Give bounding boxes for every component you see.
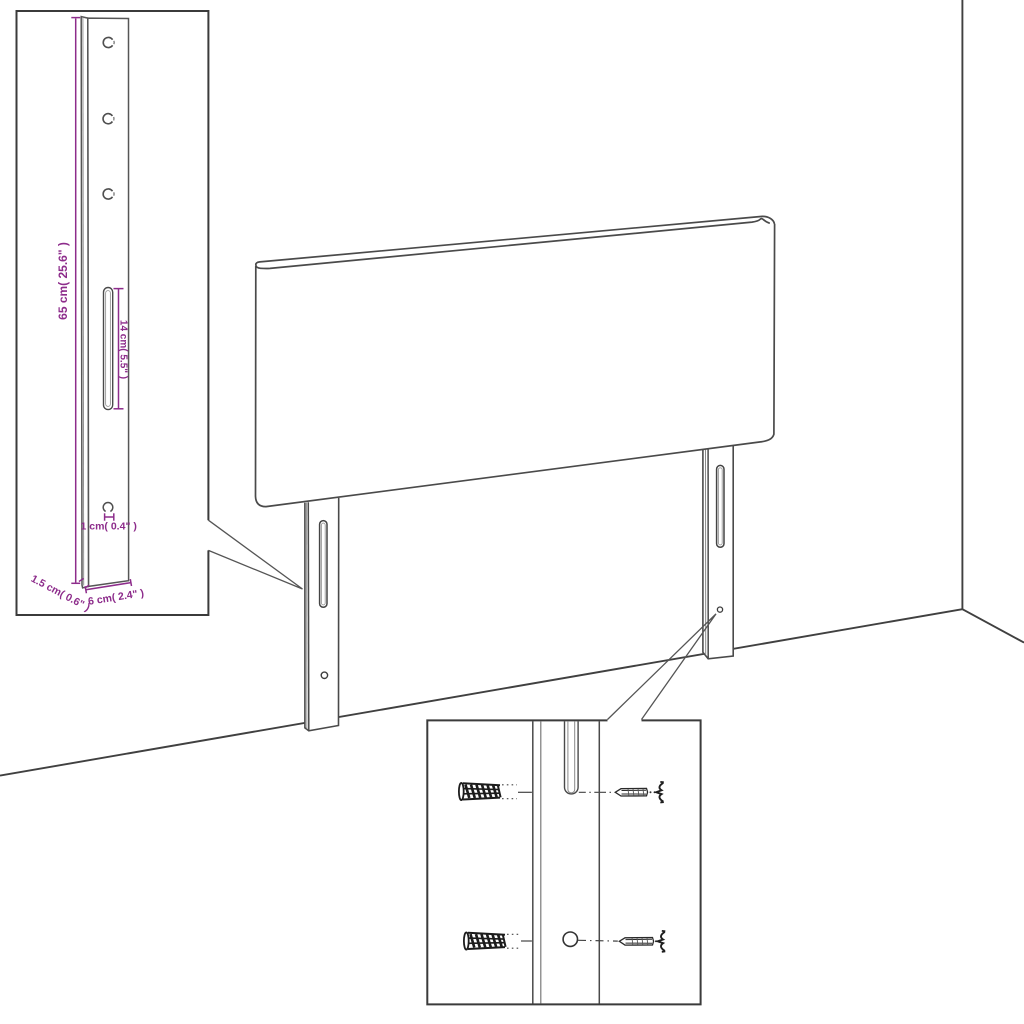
- svg-text:14 cm( 5.5" ): 14 cm( 5.5" ): [118, 320, 129, 379]
- svg-text:1 cm( 0.4" ): 1 cm( 0.4" ): [81, 521, 137, 533]
- svg-text:65 cm( 25.6" ): 65 cm( 25.6" ): [56, 242, 70, 320]
